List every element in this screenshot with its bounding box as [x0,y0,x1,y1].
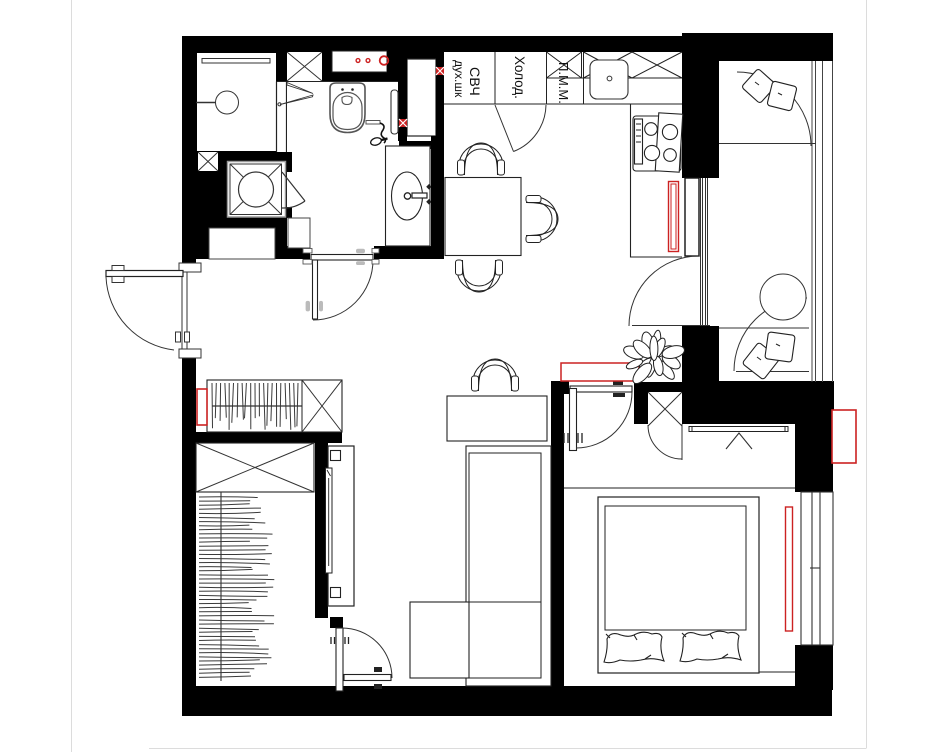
svg-text:Холод.: Холод. [512,56,527,99]
svg-text:дух.шк: дух.шк [452,60,466,98]
svg-text:П.М.М.: П.М.М. [556,62,571,104]
svg-text:СВЧ: СВЧ [467,67,483,96]
